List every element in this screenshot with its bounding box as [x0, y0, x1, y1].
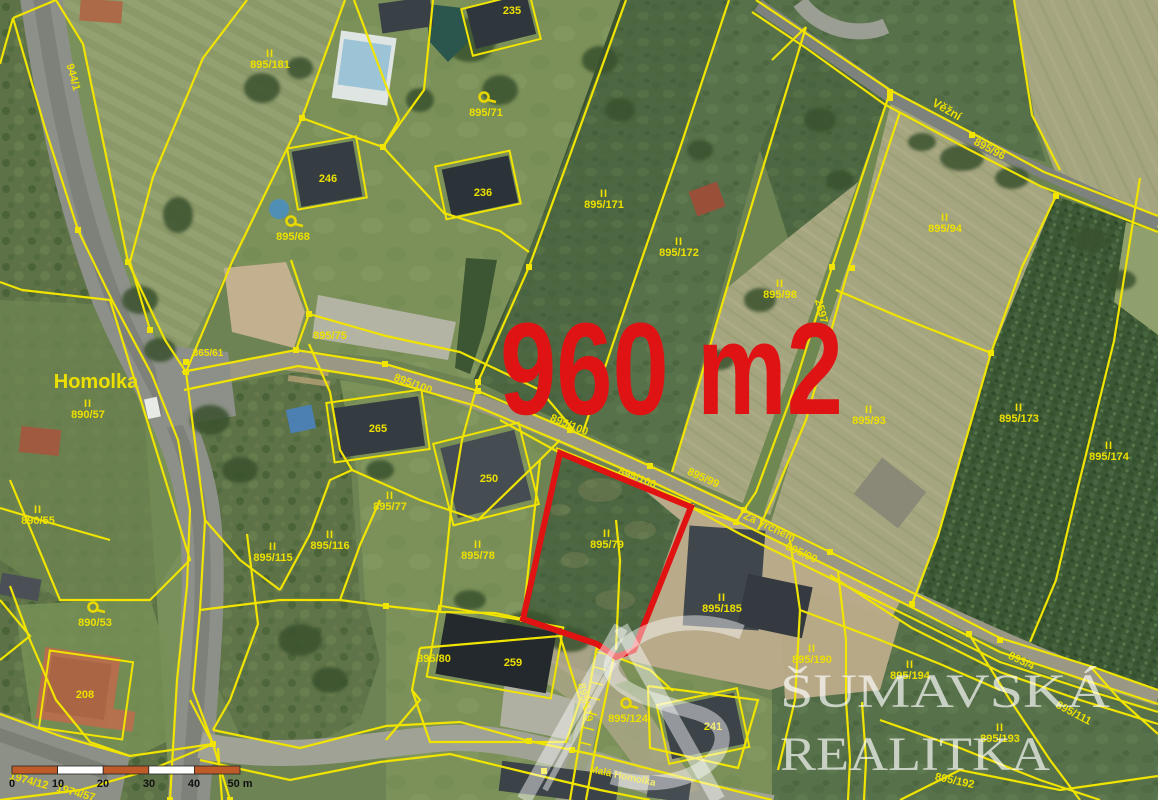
svg-text:895/80: 895/80 — [417, 653, 451, 665]
svg-text:895/78: 895/78 — [461, 550, 495, 562]
svg-text:ŠUMAVSKÁ: ŠUMAVSKÁ — [780, 664, 1110, 718]
svg-text:895/71: 895/71 — [469, 107, 503, 119]
svg-text:30: 30 — [143, 778, 155, 790]
svg-text:259: 259 — [504, 657, 522, 669]
svg-text:895/185: 895/185 — [702, 603, 742, 615]
svg-text:895/75: 895/75 — [313, 330, 347, 342]
svg-text:895/115: 895/115 — [253, 552, 292, 564]
svg-text:235: 235 — [503, 5, 521, 17]
svg-text:365/61: 365/61 — [193, 348, 224, 359]
svg-text:960 m2: 960 m2 — [500, 295, 843, 442]
svg-text:246: 246 — [319, 173, 337, 185]
svg-text:895/181: 895/181 — [250, 59, 290, 71]
svg-text:0: 0 — [9, 778, 15, 790]
svg-text:250: 250 — [480, 473, 498, 485]
svg-text:895/124: 895/124 — [608, 713, 649, 725]
svg-text:REALITKA: REALITKA — [780, 728, 1050, 781]
svg-text:895/172: 895/172 — [659, 247, 699, 259]
svg-text:890/55: 890/55 — [21, 515, 55, 527]
svg-text:Homolka: Homolka — [54, 371, 139, 393]
svg-text:895/174: 895/174 — [1089, 451, 1130, 463]
svg-text:890/53: 890/53 — [78, 617, 112, 629]
svg-text:895/93: 895/93 — [852, 415, 886, 427]
svg-text:208: 208 — [76, 689, 94, 701]
svg-text:895/68: 895/68 — [276, 231, 310, 243]
svg-text:895/171: 895/171 — [584, 199, 624, 211]
svg-text:895/77: 895/77 — [373, 501, 407, 513]
svg-text:236: 236 — [474, 187, 492, 199]
svg-text:10: 10 — [52, 778, 64, 790]
svg-text:895/79: 895/79 — [590, 539, 624, 551]
svg-text:895/94: 895/94 — [928, 223, 963, 235]
svg-text:20: 20 — [97, 778, 109, 790]
svg-text:50 m: 50 m — [227, 778, 252, 790]
svg-text:895/116: 895/116 — [310, 540, 349, 552]
svg-text:40: 40 — [188, 778, 200, 790]
svg-text:890/57: 890/57 — [71, 409, 105, 421]
svg-text:895/173: 895/173 — [999, 413, 1039, 425]
svg-text:265: 265 — [369, 423, 387, 435]
